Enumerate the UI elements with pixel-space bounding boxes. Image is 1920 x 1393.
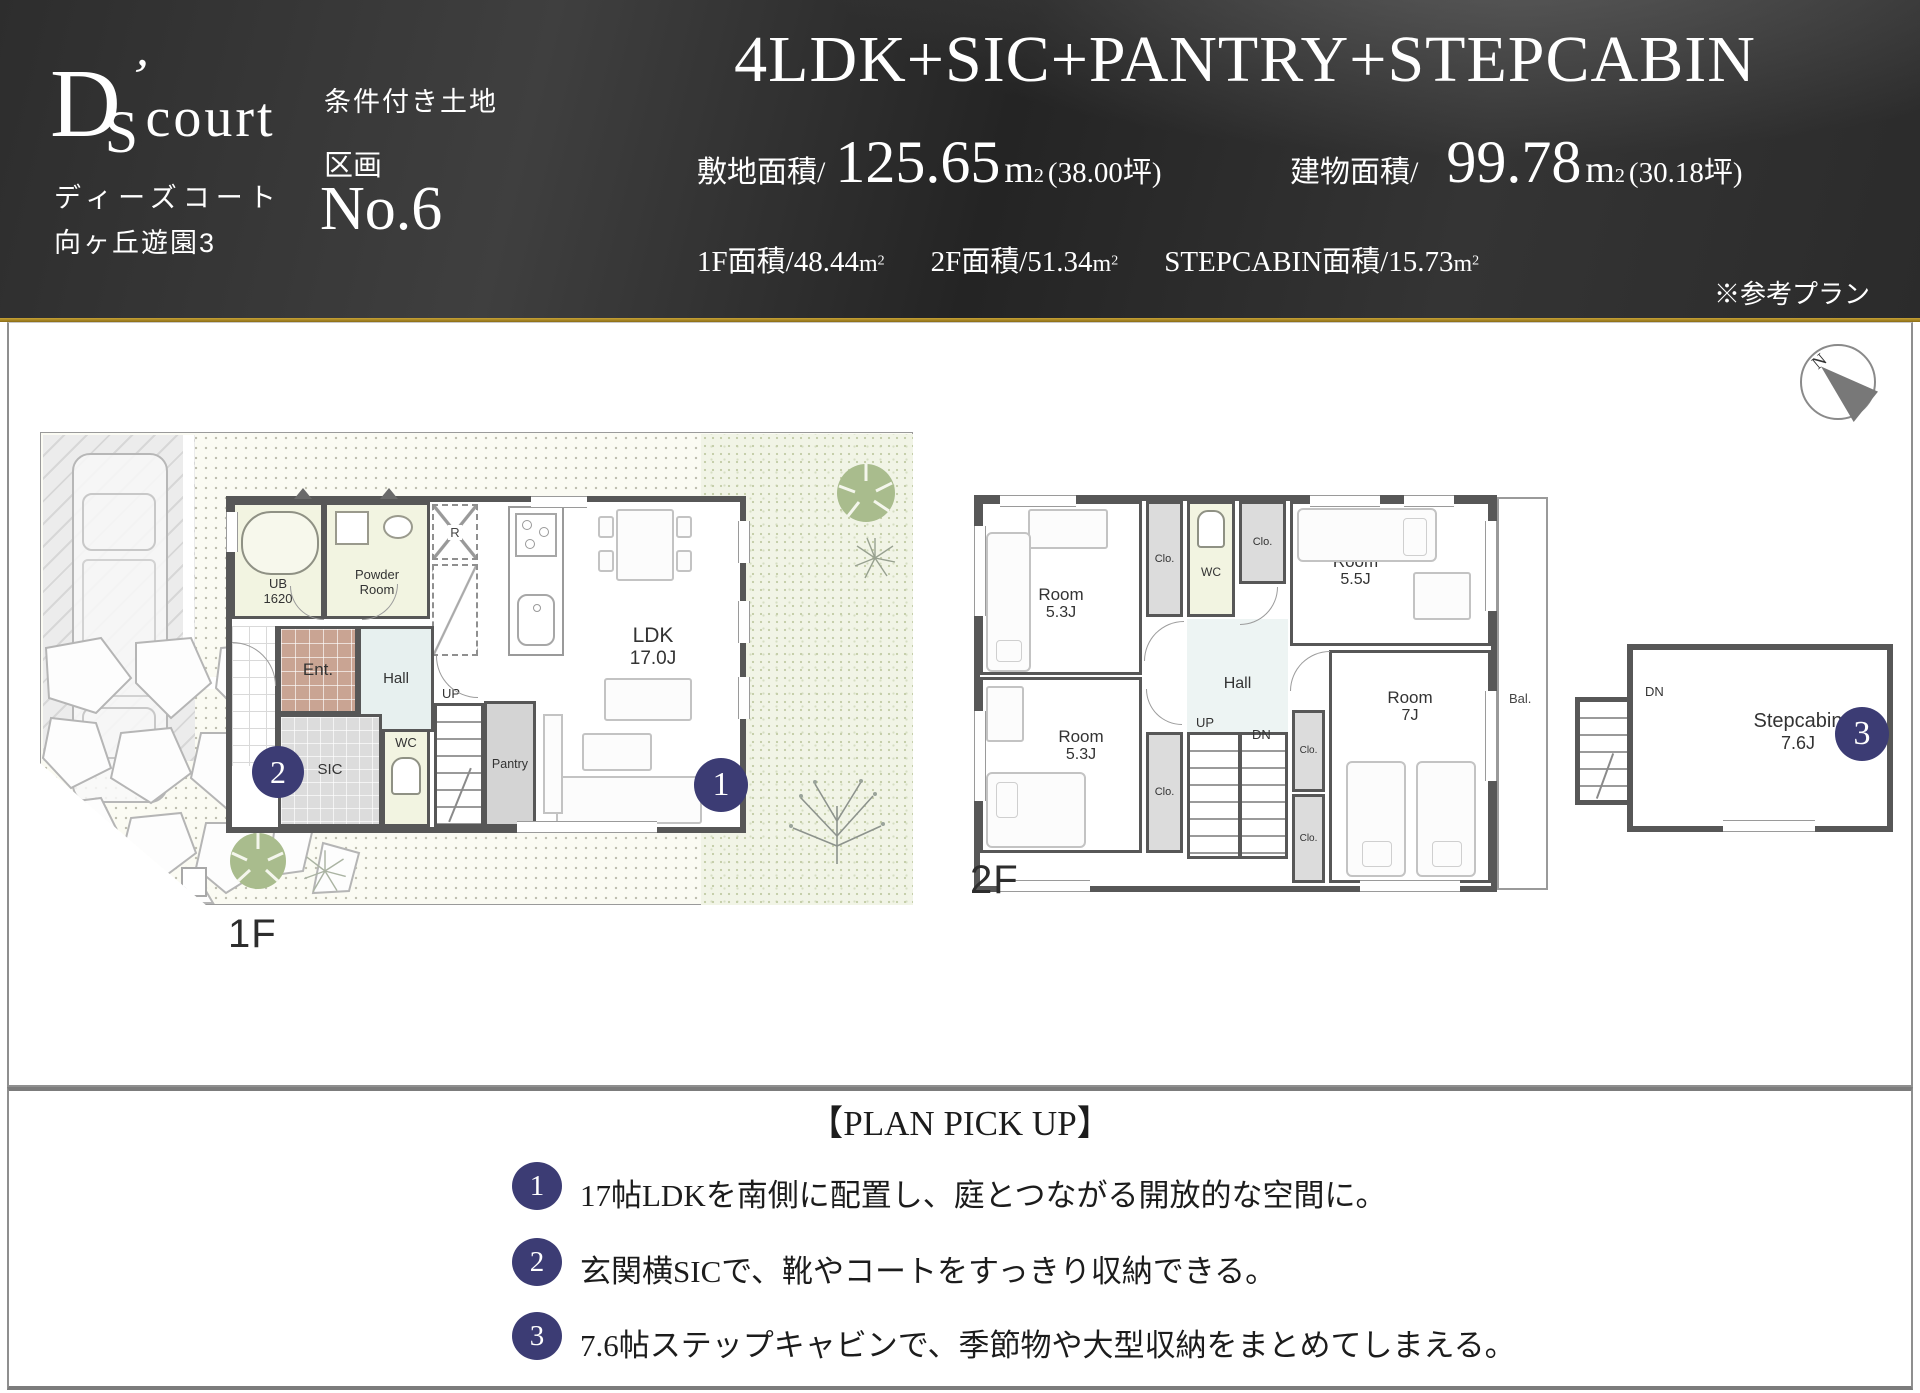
room-br-size: 7J	[1402, 707, 1419, 725]
site-area-value: 125.65	[835, 128, 1000, 197]
room-bl-label: Room	[1058, 727, 1103, 746]
plan-2f: Bal. Room 5.3J Clo. WC Clo.	[974, 495, 1550, 895]
plan-point-badge-1: 1	[694, 758, 748, 812]
window	[1485, 691, 1497, 781]
tree-twig-icon	[853, 536, 897, 580]
tv-board-icon	[543, 714, 563, 814]
pickup-text-1: 17帖LDKを南側に配置し、庭とつながる開放的な空間に。	[580, 1170, 1386, 1215]
fridge-label: R	[448, 525, 461, 540]
powder-label-1: Powder	[355, 568, 399, 583]
coffee-table-icon	[582, 733, 652, 771]
plan-point-badge-2: 2	[252, 746, 304, 798]
bed-icon	[986, 772, 1086, 848]
door-arc	[1144, 621, 1184, 661]
compass-icon: N	[1800, 344, 1876, 420]
room-2f-tl: Room 5.3J	[980, 501, 1142, 675]
house-outline-2f: Room 5.3J Clo. WC Clo. Room 5.5J	[974, 495, 1497, 892]
window	[517, 821, 657, 833]
balcony-2f: Bal.	[1497, 497, 1548, 890]
stairs-arrow-line	[448, 768, 472, 823]
hall-1f-label: Hall	[383, 671, 409, 688]
door-arc	[1146, 689, 1182, 725]
building-area-unit: m	[1585, 148, 1615, 192]
desk-icon	[986, 686, 1024, 742]
chair-icon	[598, 516, 614, 538]
building-area-unit-sup: 2	[1615, 165, 1625, 188]
building-area: 建物面積/ 99.78 m2 (30.18坪)	[1290, 128, 1742, 197]
bathtub-icon	[241, 511, 319, 575]
stairs-dn-label-2f: DN	[1252, 727, 1271, 742]
wc-2f: WC	[1187, 501, 1235, 617]
closet-2f: Clo.	[1292, 710, 1325, 792]
balcony-label: Bal.	[1509, 691, 1531, 706]
window	[974, 526, 986, 616]
bed-icon	[986, 532, 1031, 672]
stairs-2f	[1187, 732, 1288, 859]
ldk-label-group: LDK 17.0J	[618, 624, 688, 670]
bath-label: UB	[269, 577, 287, 592]
window	[1485, 521, 1497, 611]
pickup-text-2: 玄関横SICで、靴やコートをすっきり収納できる。	[580, 1246, 1276, 1291]
site-area: 敷地面積/ 125.65 m2 (38.00坪)	[697, 128, 1161, 197]
room-tl-size: 5.3J	[1046, 604, 1076, 622]
kitchen-counter	[508, 506, 564, 656]
floor-areas-row: 1F面積/48.44m2 2F面積/51.34m2 STEPCABIN面積/15…	[697, 238, 1479, 280]
room-2f-br: Room 7J	[1329, 650, 1491, 883]
fridge-space-1f: R	[432, 504, 478, 560]
bed-icon	[1297, 508, 1437, 562]
room-br-label: Room	[1387, 688, 1432, 707]
bed-icon	[1346, 761, 1406, 877]
pickup-text-3: 7.6帖ステップキャビンで、季節物や大型収納をまとめてしまえる。	[580, 1320, 1516, 1365]
window	[1310, 495, 1380, 507]
pickup-num-2: 2	[512, 1238, 562, 1286]
lot-number: No.6	[320, 174, 442, 245]
car-windshield	[82, 493, 156, 551]
pickup-title: 【PLAN PICK UP】	[0, 1095, 1920, 1146]
logo-sub-katakana: ディーズコート	[54, 176, 282, 215]
stairs-up-label-2f: UP	[1196, 715, 1214, 730]
closet-2f: Clo.	[1292, 794, 1325, 883]
floor1-area: 1F面積/48.44m2	[697, 238, 885, 280]
window	[226, 512, 238, 552]
tree-green-small-icon	[226, 829, 290, 893]
window	[1723, 820, 1815, 832]
stepcabin-area: STEPCABIN面積/15.73m2	[1164, 238, 1479, 280]
pantry-label: Pantry	[492, 757, 528, 771]
site-area-unit-sup: 2	[1034, 165, 1044, 188]
basin-icon	[383, 515, 413, 539]
wc-1f: WC	[382, 729, 430, 827]
window	[738, 677, 750, 719]
window	[738, 521, 750, 563]
flyer-page: DS’court ディーズコート 向ヶ丘遊園3 条件付き土地 区画 No.6 4…	[0, 0, 1920, 1393]
door-arc	[1290, 651, 1330, 691]
bed-icon	[1416, 761, 1476, 877]
window	[974, 711, 986, 801]
toilet-icon-2f	[1197, 510, 1225, 548]
chair-icon	[676, 550, 692, 572]
stairs-arrow-line	[1596, 753, 1614, 799]
logo-sub-area: 向ヶ丘遊園3	[54, 221, 216, 260]
window	[1000, 495, 1076, 507]
hall-2f-label: Hall	[1224, 675, 1252, 693]
floor2-caption: 2F	[970, 858, 1019, 903]
tree-branch-icon	[781, 776, 893, 868]
washer-icon	[335, 511, 369, 545]
floor1-caption: 1F	[228, 912, 277, 957]
stairs-dn-label-stepcabin: DN	[1645, 684, 1664, 699]
stove-icon	[515, 513, 557, 557]
logo-word-court: court	[145, 87, 275, 149]
logo-letter-s: S	[105, 99, 138, 165]
window	[1404, 495, 1454, 507]
toilet-icon-1f	[391, 757, 421, 795]
window	[738, 601, 750, 643]
entrance-1f: Ent.	[278, 626, 358, 714]
room-2f-tr: Room 5.5J	[1290, 501, 1491, 646]
window	[531, 496, 587, 508]
tree-flower-icon	[301, 847, 349, 895]
storage-1f	[432, 564, 478, 656]
closet-2f: Clo.	[1239, 501, 1286, 584]
room-2f-bl: Room 5.3J	[980, 677, 1142, 853]
closet-2f: Clo.	[1146, 501, 1183, 617]
sic-label: SIC	[317, 762, 342, 779]
tree-green-icon	[834, 461, 898, 525]
building-area-label: 建物面積/	[1290, 147, 1418, 191]
room-tl-label: Room	[1038, 585, 1083, 604]
bath-size-label: 1620	[264, 592, 293, 607]
building-area-tsubo: (30.18坪)	[1629, 149, 1743, 191]
ldk-size-label: 17.0J	[618, 648, 688, 670]
room-tr-size: 5.5J	[1340, 571, 1370, 589]
plan-title: 4LDK+SIC+PANTRY+STEPCABIN	[580, 22, 1910, 98]
building-area-value: 99.78	[1446, 128, 1581, 197]
wc-1f-label: WC	[395, 736, 417, 751]
stairs-stepcabin	[1575, 697, 1633, 805]
window	[1360, 880, 1460, 892]
pickup-num-1: 1	[512, 1162, 562, 1210]
entrance-label: Ent.	[303, 660, 333, 679]
desk-icon	[1413, 572, 1471, 620]
house-outline-1f: UB 1620 Powder Room R	[226, 496, 746, 833]
sink-icon	[517, 594, 555, 646]
closet-2f: Clo.	[1146, 732, 1183, 853]
sofa-large-icon	[556, 776, 702, 824]
vent-marker	[294, 488, 312, 499]
floor2-area: 2F面積/51.34m2	[931, 238, 1119, 280]
vent-marker	[380, 488, 398, 499]
header-band: DS’court ディーズコート 向ヶ丘遊園3 条件付き土地 区画 No.6 4…	[0, 0, 1920, 318]
stairs-1f	[434, 703, 484, 827]
site-area-unit: m	[1004, 148, 1034, 192]
land-condition-label: 条件付き土地	[324, 80, 498, 119]
pantry-1f: Pantry	[484, 701, 536, 827]
reference-plan-note: ※参考プラン	[1714, 274, 1870, 311]
stairs-divider	[1238, 735, 1242, 856]
brand-logo: DS’court	[50, 48, 350, 168]
site-plan-1f: UB 1620 Powder Room R	[40, 432, 913, 905]
dining-table-icon	[616, 509, 674, 581]
pickup-num-3: 3	[512, 1312, 562, 1360]
desk-icon	[1028, 509, 1108, 549]
plan-point-badge-3: 3	[1835, 707, 1889, 761]
site-area-tsubo: (38.00坪)	[1048, 149, 1162, 191]
site-area-label: 敷地面積/	[697, 147, 825, 191]
wc-2f-label: WC	[1201, 566, 1221, 579]
chair-icon	[598, 550, 614, 572]
room-bl-size: 5.3J	[1066, 746, 1096, 764]
chair-icon	[676, 516, 692, 538]
sofa-icon	[604, 678, 692, 721]
ldk-label: LDK	[618, 624, 688, 648]
